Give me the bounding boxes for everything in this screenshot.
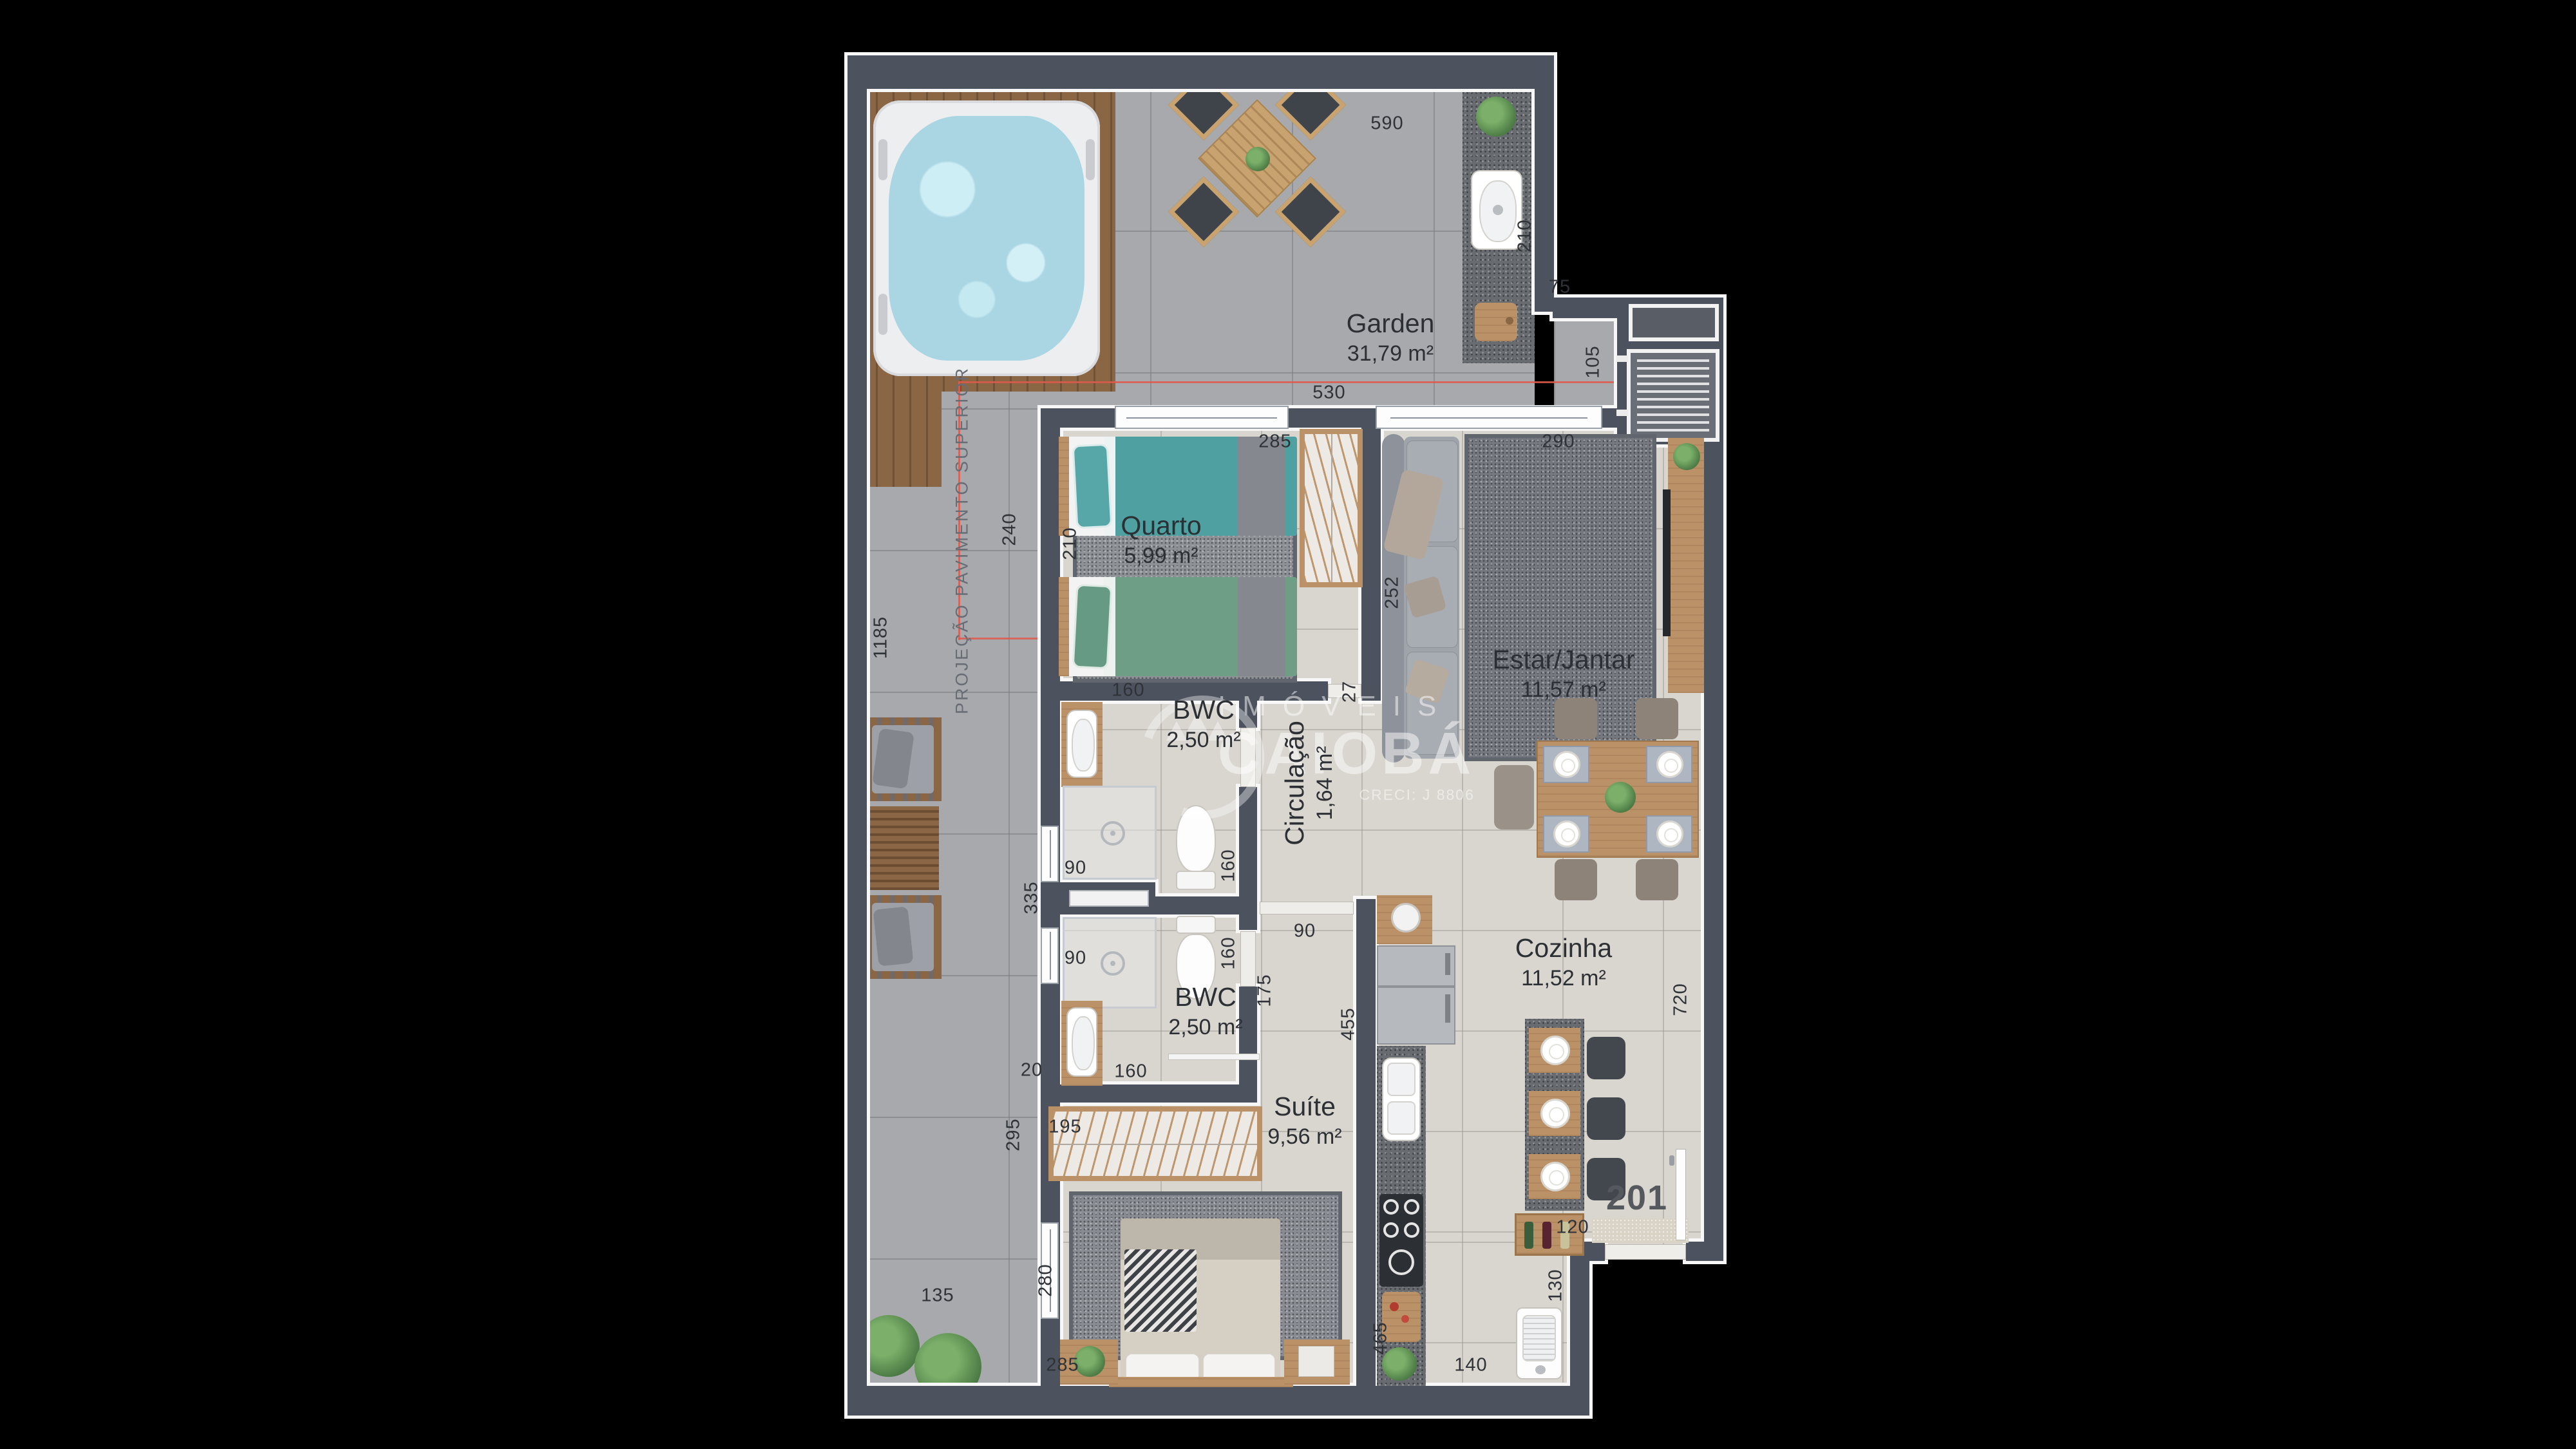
ac-pipe xyxy=(1616,355,1628,362)
dimension-label: 290 xyxy=(1542,431,1575,453)
dimension-label: 285 xyxy=(1046,1355,1079,1376)
dimension-label: 590 xyxy=(1370,113,1403,135)
floor-plan: IMÓVEIS CAIOBÁ CRECI: J 8806 PROJEÇÃO PA… xyxy=(848,28,1728,1421)
shower-window xyxy=(1041,826,1059,882)
island-plate xyxy=(1540,1162,1570,1191)
room-label: Suíte9,56 m² xyxy=(1267,1090,1341,1151)
room-label: Quarto5,99 m² xyxy=(1121,509,1201,570)
wall xyxy=(848,55,867,1416)
entry-doormat xyxy=(1592,1218,1689,1243)
single-bed-green xyxy=(1061,577,1297,676)
estar-sliding-window xyxy=(1376,406,1602,429)
wall xyxy=(1587,1242,1605,1261)
wall xyxy=(848,55,1554,89)
dining-plate xyxy=(1656,751,1683,778)
dining-chair xyxy=(1636,698,1678,739)
wall xyxy=(1041,1084,1257,1103)
dining-plate xyxy=(1553,820,1580,848)
tv xyxy=(1663,489,1671,636)
unit-number: 201 xyxy=(1606,1178,1668,1218)
wall xyxy=(848,1386,1589,1416)
room-label: Cozinha11,52 m² xyxy=(1515,932,1612,992)
hot-tub-headrest xyxy=(1086,139,1095,180)
sun-lounger xyxy=(864,717,942,801)
dimension-label: 285 xyxy=(1258,431,1291,453)
wall xyxy=(1570,1242,1589,1416)
cooktop xyxy=(1379,1194,1423,1287)
bwc1-sink xyxy=(1066,710,1097,778)
bwc2-door-threshold xyxy=(1240,931,1256,987)
room-label: Estar/Jantar11,57 m² xyxy=(1492,643,1634,704)
vent-box xyxy=(1629,304,1719,341)
room-label: BWC2,50 m² xyxy=(1166,694,1240,754)
dimension-label: 455 xyxy=(1338,1007,1359,1040)
coffee-pot xyxy=(1391,903,1421,933)
dimension-label: 295 xyxy=(1003,1118,1025,1151)
dining-table-plant xyxy=(1605,782,1636,813)
dimension-label: 175 xyxy=(1255,974,1276,1007)
island-plate xyxy=(1540,1036,1570,1065)
dimension-label: 160 xyxy=(1112,680,1144,701)
dimension-label: 465 xyxy=(1370,1321,1392,1354)
suite-door-threshold xyxy=(1260,902,1354,914)
table-plant xyxy=(1245,147,1270,171)
fridge xyxy=(1377,945,1455,1045)
wood-deck-strip xyxy=(859,389,942,487)
kitchen-sink xyxy=(1382,1057,1421,1141)
wall xyxy=(1686,1242,1723,1261)
sun-lounger xyxy=(864,895,942,979)
dining-chair xyxy=(1555,698,1597,739)
dimension-label: 720 xyxy=(1671,983,1692,1016)
room-label: Garden31,79 m² xyxy=(1347,307,1435,368)
island-plate xyxy=(1540,1099,1570,1128)
dining-plate xyxy=(1553,751,1580,778)
laundry-tub xyxy=(1516,1307,1562,1379)
entry-door-threshold xyxy=(1605,1244,1686,1260)
dimension-label: 75 xyxy=(1549,277,1571,298)
wall xyxy=(1155,896,1257,914)
dimension-label: 20 xyxy=(1021,1060,1043,1081)
dimension-label: 1185 xyxy=(871,616,892,659)
bbq-faucet xyxy=(1493,205,1503,215)
dining-chair xyxy=(1636,859,1678,900)
entry-door-leaf xyxy=(1676,1149,1686,1240)
dimension-label: 335 xyxy=(1021,881,1043,914)
entry-door-handle xyxy=(1669,1155,1674,1166)
dimension-label: 105 xyxy=(1583,345,1604,378)
dimension-label: 27 xyxy=(1340,681,1361,703)
shower-window xyxy=(1041,927,1059,984)
dimension-label: 140 xyxy=(1454,1355,1487,1376)
suite-bed xyxy=(1121,1218,1280,1386)
wall xyxy=(1361,428,1381,701)
room-label: BWC2,50 m² xyxy=(1168,981,1242,1041)
dimension-label: 160 xyxy=(1218,936,1240,969)
bwc2-sink xyxy=(1066,1007,1097,1077)
watermark-creci: CRECI: J 8806 xyxy=(1218,786,1475,804)
dimension-label: 210 xyxy=(1515,219,1536,252)
dimension-label: 530 xyxy=(1312,383,1345,404)
dimension-label: 120 xyxy=(1556,1217,1589,1238)
dimension-label: 210 xyxy=(1060,527,1081,560)
nightstand-book xyxy=(1298,1346,1334,1377)
bar-stool xyxy=(1587,1037,1625,1079)
dimension-label: 280 xyxy=(1036,1264,1057,1296)
quarto-sliding-door xyxy=(1115,406,1289,429)
tv-console xyxy=(1668,438,1704,693)
shower-niche xyxy=(1069,890,1149,907)
watermark-brand-main: CAIOBÁ xyxy=(1218,723,1475,785)
dimension-label: 160 xyxy=(1114,1061,1147,1083)
wall xyxy=(1356,899,1376,1386)
hot-tub-headrest xyxy=(878,294,887,335)
hot-tub xyxy=(873,100,1100,376)
dimension-label: 252 xyxy=(1382,576,1403,609)
room-label: Circulação1,64 m² xyxy=(1278,721,1339,846)
dimension-label: 90 xyxy=(1065,948,1086,969)
screenshot-stage: IMÓVEIS CAIOBÁ CRECI: J 8806 PROJEÇÃO PA… xyxy=(0,0,2576,1449)
dimension-label: 195 xyxy=(1048,1117,1081,1138)
dining-plate xyxy=(1656,820,1683,848)
dimension-label: 130 xyxy=(1546,1269,1567,1302)
towel-rail xyxy=(1168,1054,1260,1060)
dimension-label: 240 xyxy=(999,513,1021,545)
outdoor-dining-set xyxy=(1177,79,1337,238)
quarto-wardrobe xyxy=(1300,429,1363,587)
hot-tub-water xyxy=(889,116,1084,361)
deck-side-table xyxy=(867,806,939,890)
dining-chair xyxy=(1555,859,1597,900)
dimension-label: 90 xyxy=(1294,921,1316,942)
ac-condenser xyxy=(1627,349,1719,442)
dimension-label: 135 xyxy=(921,1285,954,1307)
hot-tub-headrest xyxy=(878,139,887,180)
suite-bed-base xyxy=(1109,1377,1293,1387)
cutting-board xyxy=(1475,303,1517,341)
bbq-plant xyxy=(1476,97,1516,137)
dimension-label: 160 xyxy=(1218,849,1240,882)
projection-label: PROJEÇÃO PAVIMENTO SUPERIOR xyxy=(952,366,972,714)
upper-floor-projection-line xyxy=(958,381,1642,383)
console-plant xyxy=(1673,443,1700,470)
ac-pipe xyxy=(1616,410,1628,416)
bar-stool xyxy=(1587,1097,1625,1140)
dimension-label: 90 xyxy=(1065,858,1086,879)
